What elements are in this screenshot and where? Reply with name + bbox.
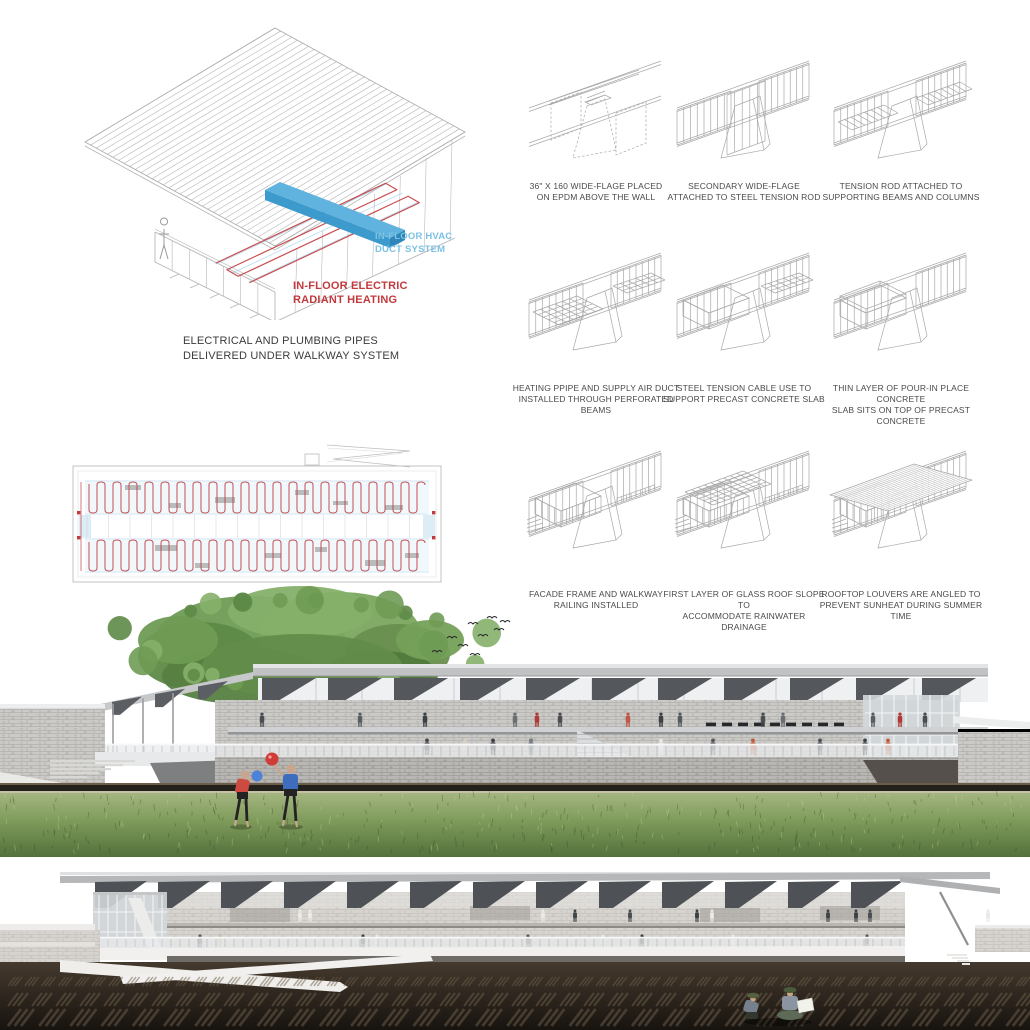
presentation-board: IN-FLOOR HVAC DUCT SYSTEM IN-FLOOR ELECT… [0,0,1030,1030]
step-caption: HEATING PPIPE AND SUPPLY AIR DUCT INSTAL… [511,383,681,416]
step-caption: SECONDARY WIDE-FLAGE ATTACHED TO STEEL T… [659,181,829,203]
axon-drawing [60,10,480,320]
step-caption: 36" X 160 WIDE-FLAGE PLACED ON EPDM ABOV… [511,181,681,203]
step-caption: STEEL TENSION CABLE USE TO SUPPORT PRECA… [659,383,829,405]
field-section-render [0,868,1030,1030]
label-radiant-heating: IN-FLOOR ELECTRIC RADIANT HEATING [293,279,408,308]
balloon-red [266,753,279,766]
building-elevation [100,664,1030,757]
balloon-blue [252,771,263,782]
step-diagram [521,438,671,568]
step-diagram [669,240,819,370]
step-diagram [826,438,976,568]
step-diagram [826,240,976,370]
left-stone-ramp [0,924,100,966]
park-elevation-render [0,580,1030,857]
step-caption: THIN LAYER OF POUR-IN PLACE CONCRETE SLA… [816,383,986,427]
step-diagram [669,438,819,568]
step-caption: TENSION ROD ATTACHED TO SUPPORTING BEAMS… [816,181,986,203]
step-diagram [521,48,671,178]
step-diagram [669,48,819,178]
floor-plan [65,435,465,590]
step-diagram [826,48,976,178]
axon-caption: ELECTRICAL AND PLUMBING PIPES DELIVERED … [183,334,399,365]
label-hvac-duct: IN-FLOOR HVAC DUCT SYSTEM [375,231,452,257]
step-diagram [521,240,671,370]
